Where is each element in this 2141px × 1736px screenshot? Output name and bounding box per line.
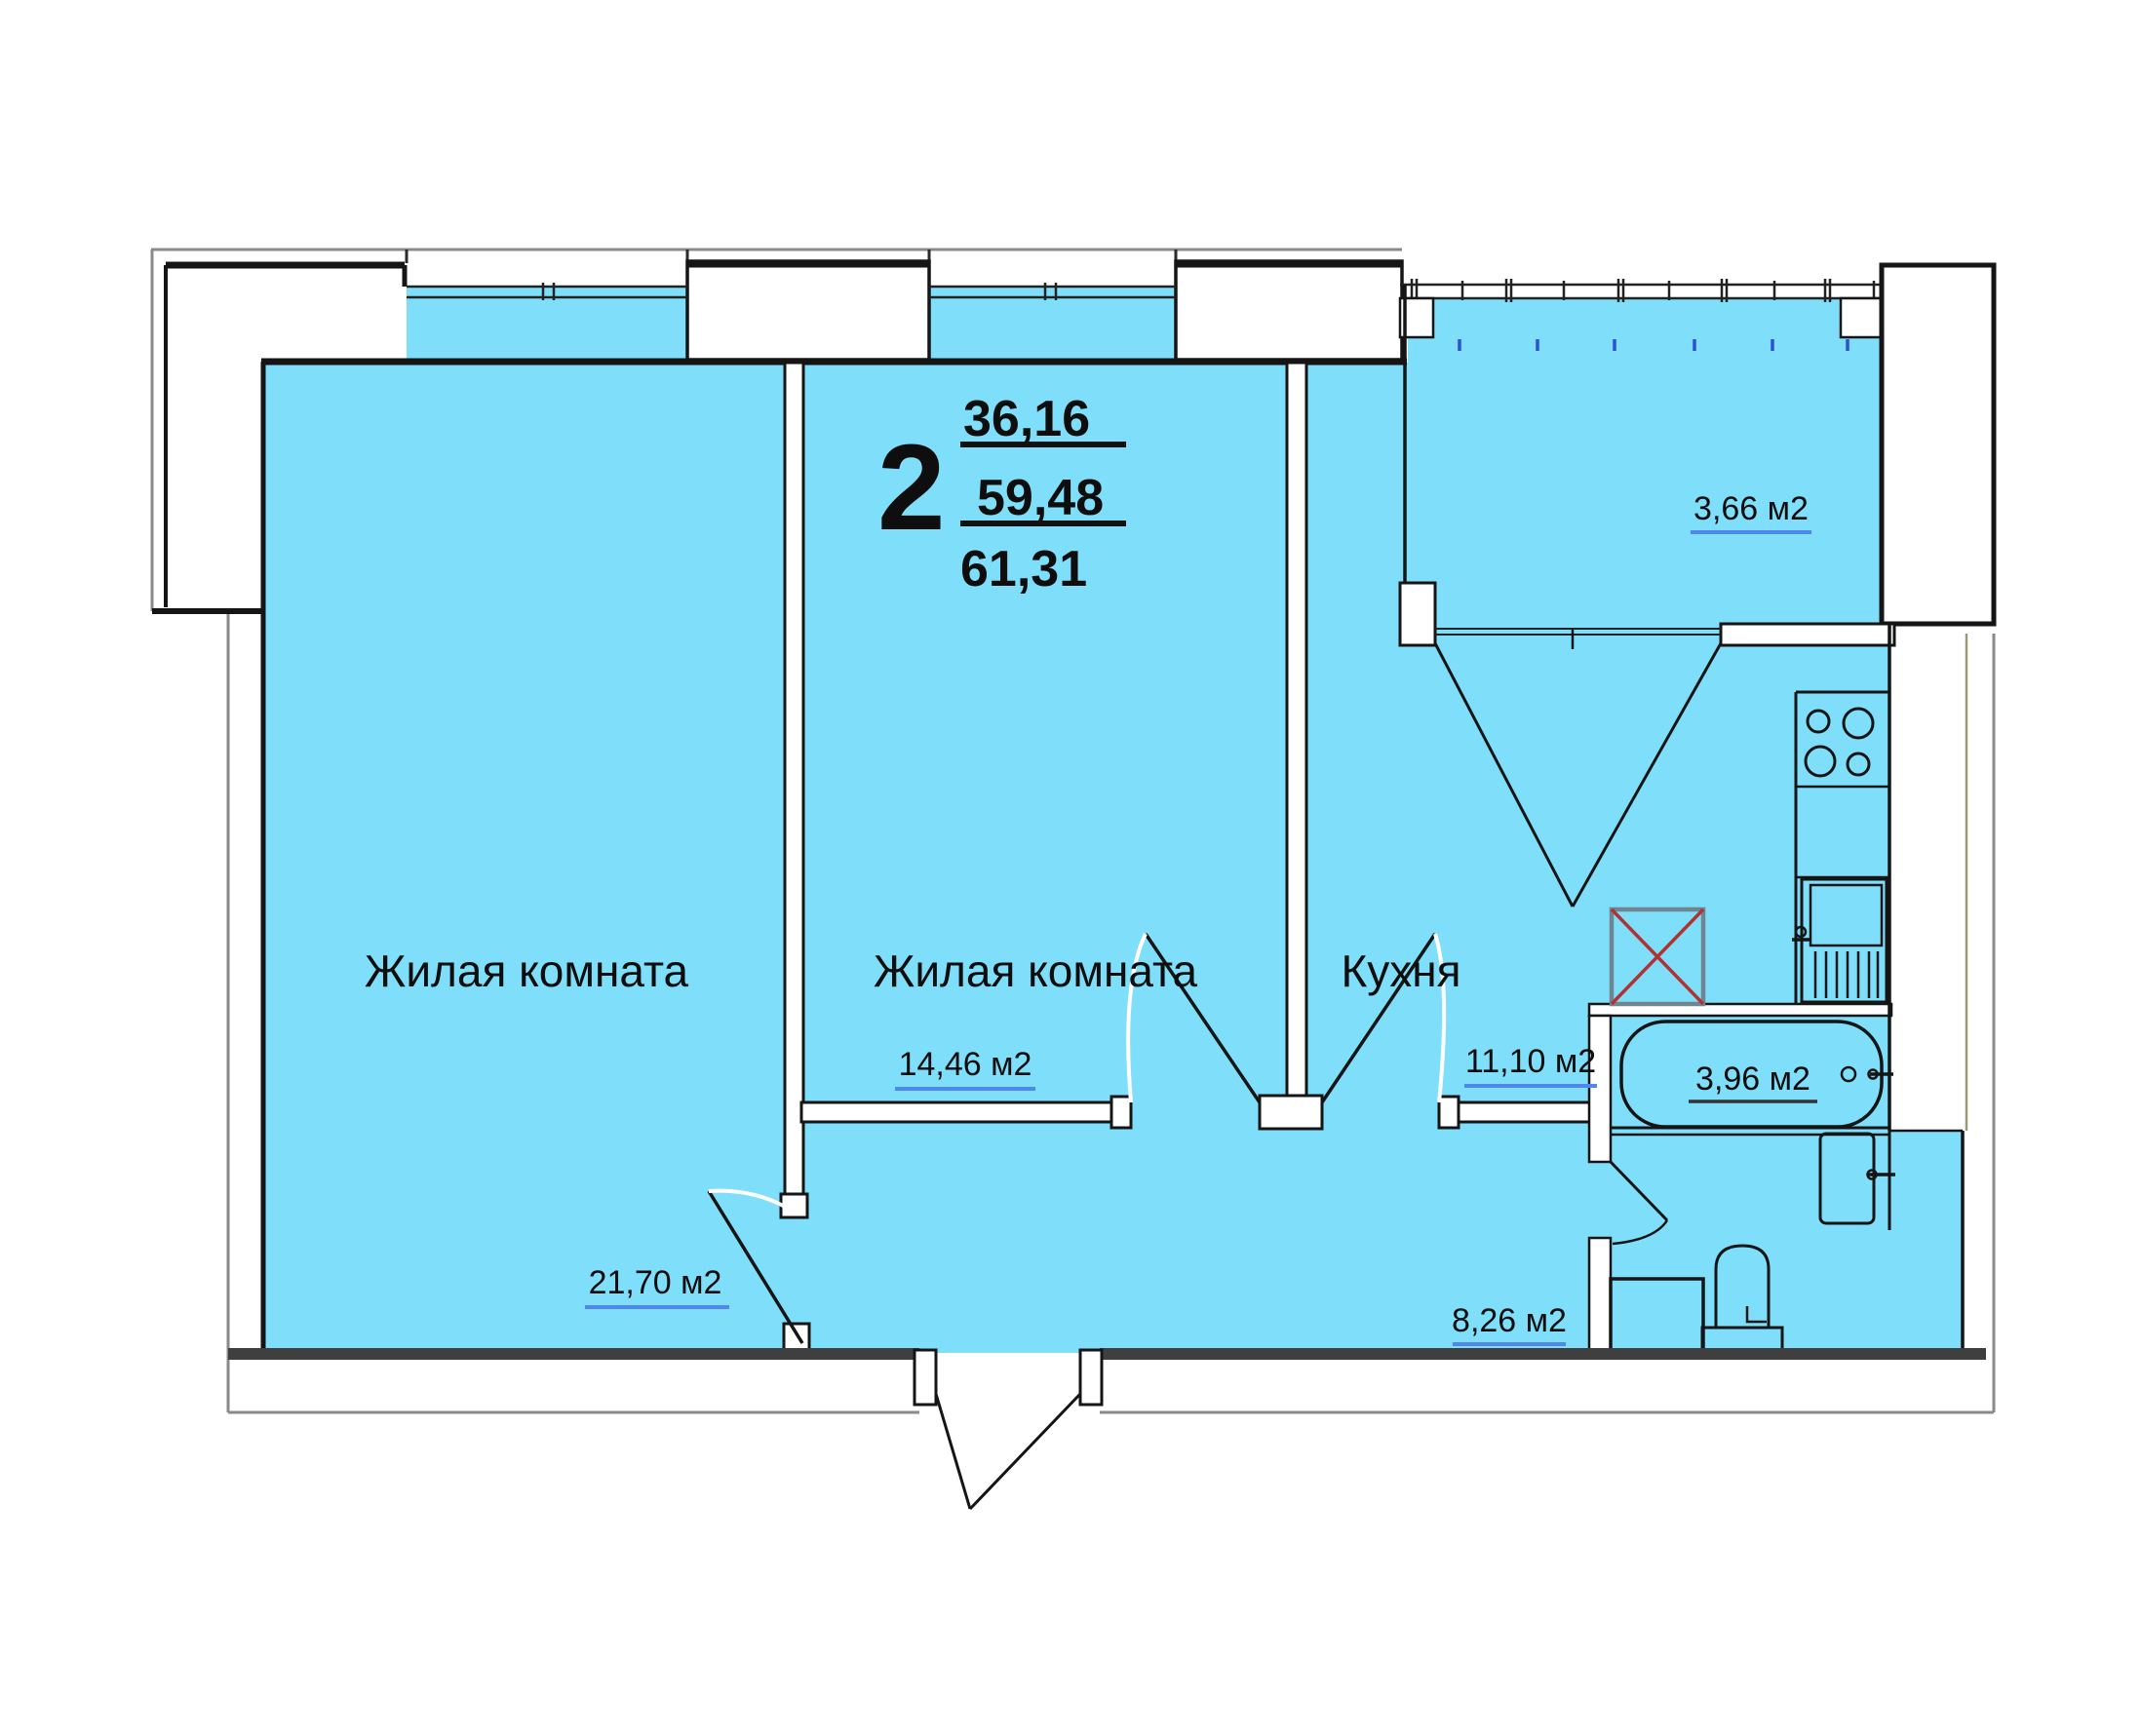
door-stub-wall	[1260, 1096, 1322, 1129]
bottom-wall-left	[228, 1348, 919, 1360]
kitchen-door-jamb	[1439, 1097, 1459, 1128]
bathroom-area: 3,96 м2	[1695, 1061, 1810, 1098]
entrance-jamb-left	[915, 1350, 936, 1405]
entrance-jamb-right	[1080, 1350, 1102, 1405]
area-reduced-value: 59,48	[977, 470, 1104, 526]
balcony-right-pier	[1841, 298, 1882, 337]
wc-left-wall-lower	[1589, 1238, 1611, 1353]
room2-area: 14,46 м2	[899, 1046, 1032, 1083]
floor-plan-page: 2 36,16 59,48 61,31 Жилая комната Жилая …	[0, 0, 2141, 1736]
entrance-door-leaf-right	[970, 1394, 1080, 1509]
bottom-wall-right	[1100, 1348, 1986, 1360]
bottom-wall-entrance	[228, 1348, 1986, 1509]
wall-room2-hall	[801, 1102, 1115, 1122]
kitchen-area: 11,10 м2	[1465, 1043, 1596, 1080]
rooms-count: 2	[877, 420, 946, 556]
room2-door-jamb	[1111, 1097, 1131, 1128]
wall-room2-kitchen	[1287, 363, 1306, 1102]
floor-plan-drawing: 2 36,16 59,48 61,31 Жилая комната Жилая …	[0, 0, 2141, 1736]
balcony-glazing	[1400, 279, 1882, 302]
wall-room1-room2	[785, 363, 803, 1194]
shaft-column	[1882, 265, 1994, 624]
hall-area: 8,26 м2	[1452, 1302, 1567, 1339]
entrance-door-leaf-left	[936, 1394, 970, 1509]
area-total-value: 61,31	[960, 541, 1087, 598]
wall-block-left	[1400, 583, 1435, 645]
room2-name: Жилая комната	[874, 945, 1198, 996]
title-divider-2	[960, 521, 1126, 526]
kitchen-name: Кухня	[1341, 945, 1460, 996]
bathroom-left-wall-upper	[1589, 1016, 1611, 1162]
wall-kitchen-hall	[1459, 1102, 1600, 1122]
wall-block-right	[1721, 624, 1894, 645]
balcony-area: 3,66 м2	[1693, 490, 1809, 527]
balcony-fill	[1408, 297, 1882, 624]
title-divider-1	[960, 442, 1126, 447]
room1-area: 21,70 м2	[589, 1264, 722, 1301]
room1-name: Жилая комната	[365, 945, 689, 996]
wc-nook-fill	[1889, 1131, 1963, 1353]
area-living-value: 36,16	[963, 391, 1090, 447]
